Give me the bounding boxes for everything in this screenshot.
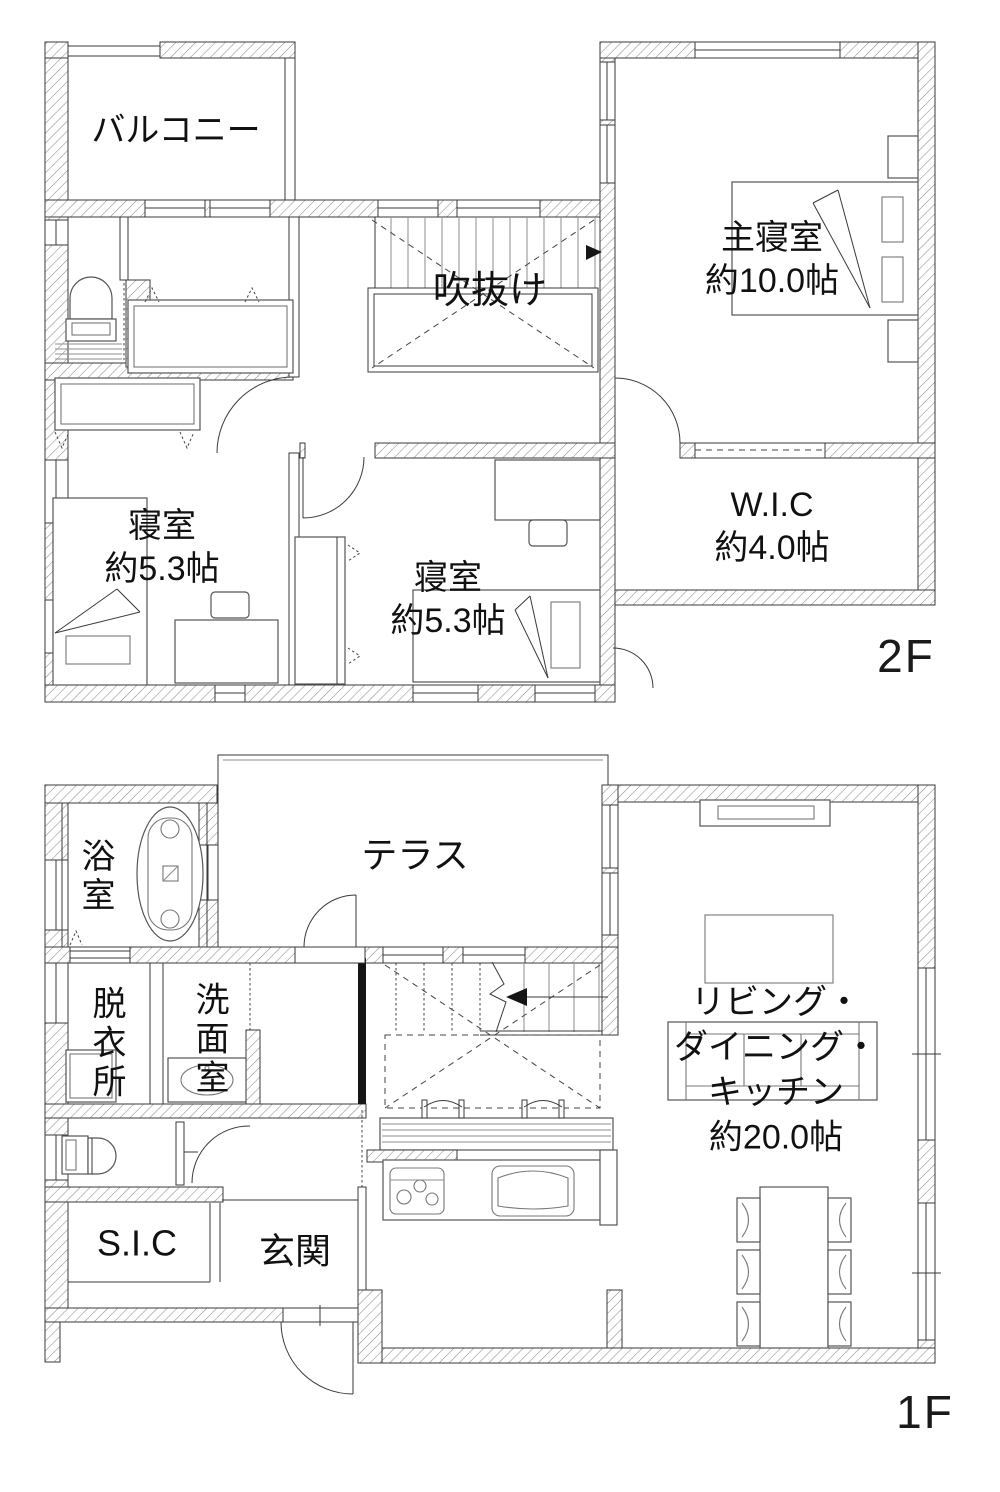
room-label-balcony: バルコニー bbox=[91, 110, 260, 153]
kitchen bbox=[367, 1100, 617, 1225]
dining-chair bbox=[828, 1250, 851, 1294]
room-label-washroom: 洗面室 bbox=[192, 982, 226, 1099]
dining-chair bbox=[737, 1250, 760, 1294]
room-label-dressing: 脱衣所 bbox=[89, 986, 123, 1103]
bath-folding-door bbox=[70, 931, 82, 945]
desk-bedroom-center bbox=[495, 460, 600, 546]
room-label-entrance: 玄関 bbox=[259, 1228, 331, 1273]
floor-label-2f: 2F bbox=[877, 628, 935, 686]
room-label-void: 吹抜け bbox=[433, 268, 547, 316]
bathtub bbox=[137, 807, 203, 941]
floor-label-1f: 1F bbox=[896, 1384, 954, 1442]
rug bbox=[705, 915, 833, 983]
door-arc-master bbox=[615, 378, 680, 443]
room-label-sic: S.I.C bbox=[97, 1220, 177, 1265]
terrace-outline bbox=[218, 755, 608, 803]
tv-board bbox=[700, 800, 830, 826]
staircase-1f bbox=[385, 962, 608, 1108]
dining-chair bbox=[828, 1302, 851, 1346]
room-label-bedroom-center: 寝室 約5.3帖 bbox=[390, 557, 505, 643]
stair-break-line bbox=[490, 962, 506, 1032]
door-arc-bedroom-left bbox=[217, 377, 293, 453]
dining-table bbox=[760, 1187, 828, 1348]
desk-bedroom-left bbox=[175, 592, 278, 683]
counter-stool bbox=[422, 1100, 464, 1118]
kitchen-counter bbox=[380, 1118, 613, 1150]
room-label-terrace: テラス bbox=[361, 832, 468, 877]
counter-stool bbox=[522, 1100, 564, 1118]
toilet-1f bbox=[62, 1136, 116, 1174]
closet-bedroom-center bbox=[295, 537, 360, 684]
nightstand bbox=[888, 320, 918, 362]
door-arc-toilet-1f bbox=[192, 1126, 250, 1183]
door-arc-bedroom-center bbox=[303, 457, 364, 518]
dining-chair bbox=[737, 1302, 760, 1346]
stair-direction-arrow-1f bbox=[506, 988, 527, 1006]
door-arc-entrance bbox=[281, 1322, 353, 1394]
kitchen-end-panel bbox=[600, 1150, 617, 1225]
door-arc-small bbox=[613, 648, 653, 688]
floor-plan-page: バルコニー 吹抜け 主寝室 約10.0帖 寝室 約5.3帖 寝室 約5.3帖 W… bbox=[0, 0, 1000, 1492]
closet-hall-2f bbox=[128, 288, 293, 373]
room-label-wic: W.I.C 約4.0帖 bbox=[714, 484, 829, 570]
nightstand bbox=[888, 136, 918, 178]
room-label-ldk: リビング・ ダイニング・ キッチン 約20.0帖 bbox=[674, 980, 878, 1160]
closet-bedroom-left bbox=[55, 378, 200, 448]
dining-set bbox=[737, 1187, 851, 1348]
floor-plan-drawing bbox=[0, 0, 1000, 1492]
room-label-master-bedroom: 主寝室 約10.0帖 bbox=[705, 217, 839, 303]
dining-chair bbox=[828, 1198, 851, 1242]
dining-chair bbox=[737, 1198, 760, 1242]
room-label-bath: 浴室 bbox=[78, 838, 112, 916]
door-arc-terrace bbox=[304, 895, 356, 947]
room-label-bedroom-left: 寝室 約5.3帖 bbox=[104, 505, 219, 591]
void-above-outline bbox=[385, 1035, 600, 1108]
